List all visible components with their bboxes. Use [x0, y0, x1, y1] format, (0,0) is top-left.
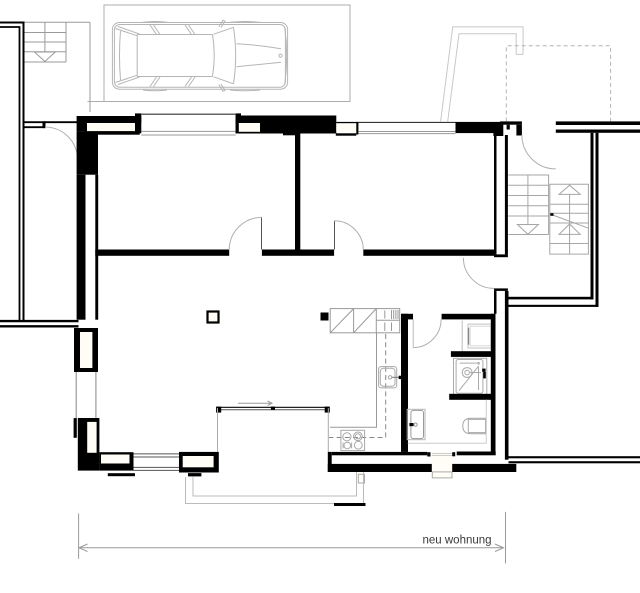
svg-text:neu wohnung: neu wohnung — [423, 535, 492, 547]
